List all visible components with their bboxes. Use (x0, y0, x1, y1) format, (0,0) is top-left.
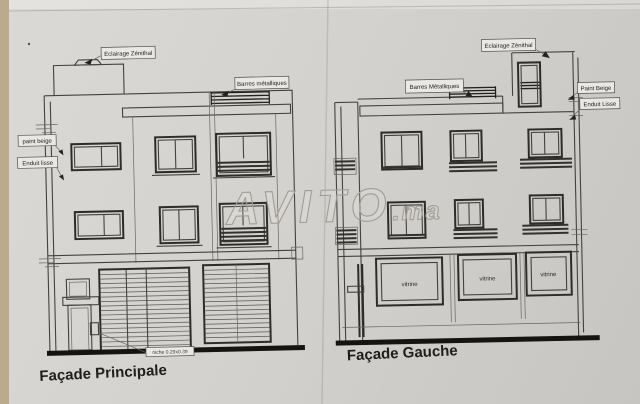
vitrine-window: vitrine (526, 252, 572, 296)
ground-line-right (336, 335, 600, 346)
slab-band (48, 250, 296, 264)
label-paint-beige-left: paint beige (18, 134, 63, 156)
label-text: Enduit lisse (22, 161, 53, 168)
roof-bulkhead (53, 64, 124, 96)
window (151, 136, 200, 175)
watermark-suffix: .ma (392, 197, 442, 226)
metal-bars-left (211, 91, 269, 105)
vitrine-window: vitrine (458, 254, 517, 300)
vitrine-label: vitrine (479, 276, 496, 282)
window-with-louvers (519, 129, 572, 168)
label-eclairage-zenithal-right: Eclairage Zénithal (481, 38, 549, 59)
bulkhead-door (518, 62, 541, 106)
cornice-band (122, 104, 290, 117)
window-with-louvers (448, 130, 497, 171)
vitrine-window: vitrine (376, 257, 443, 305)
label-text: Paint Beige (581, 86, 612, 93)
rolling-shutter (203, 264, 271, 343)
window (71, 143, 121, 170)
watermark: AVITO.ma (224, 177, 442, 235)
label-barres-metalliques-left: Barres métalliques (221, 76, 289, 97)
paper-edge-strip (0, 0, 9, 404)
facade-principale-title: Façade Principale (39, 362, 167, 385)
louver-vent (334, 158, 356, 174)
label-text: Eclairage Zénithal (485, 43, 533, 50)
label-text: paint beige (22, 139, 52, 146)
cornice-band (360, 103, 503, 116)
label-eclairage-zenithal-left: Eclairage Zénithal (84, 46, 155, 65)
window (156, 206, 203, 246)
label-text: Barres métalliques (237, 81, 287, 88)
watermark-brand: AVITO (224, 178, 393, 234)
facade-gauche-title: Façade Gauche (347, 342, 459, 364)
label-enduit-lisse-left: Enduit lisse (18, 156, 65, 181)
window-with-louvers (522, 195, 569, 234)
photo-of-architectural-plan: Eclairage Zénithal Barres métalliques pa… (0, 0, 640, 404)
window-with-louvers (212, 133, 275, 178)
entrance (62, 279, 100, 351)
label-text: niche 0.29x0.39 (152, 349, 188, 356)
label-enduit-lisse-right: Enduit Lisse (569, 98, 620, 120)
label-barres-metalliques-right: Barres Métalliques (405, 79, 472, 98)
facade-edge-box (292, 247, 303, 259)
window-with-louvers (453, 199, 498, 238)
window (381, 132, 422, 170)
window (75, 211, 124, 239)
label-text: Enduit Lisse (583, 102, 616, 109)
vitrine-label: vitrine (540, 272, 557, 278)
vitrine-label: vitrine (401, 282, 418, 288)
label-text: Barres Métalliques (410, 84, 460, 91)
label-paint-beige-right: Paint Beige (567, 82, 614, 100)
label-text: Eclairage Zénithal (104, 51, 152, 58)
paper-speck (28, 43, 30, 45)
